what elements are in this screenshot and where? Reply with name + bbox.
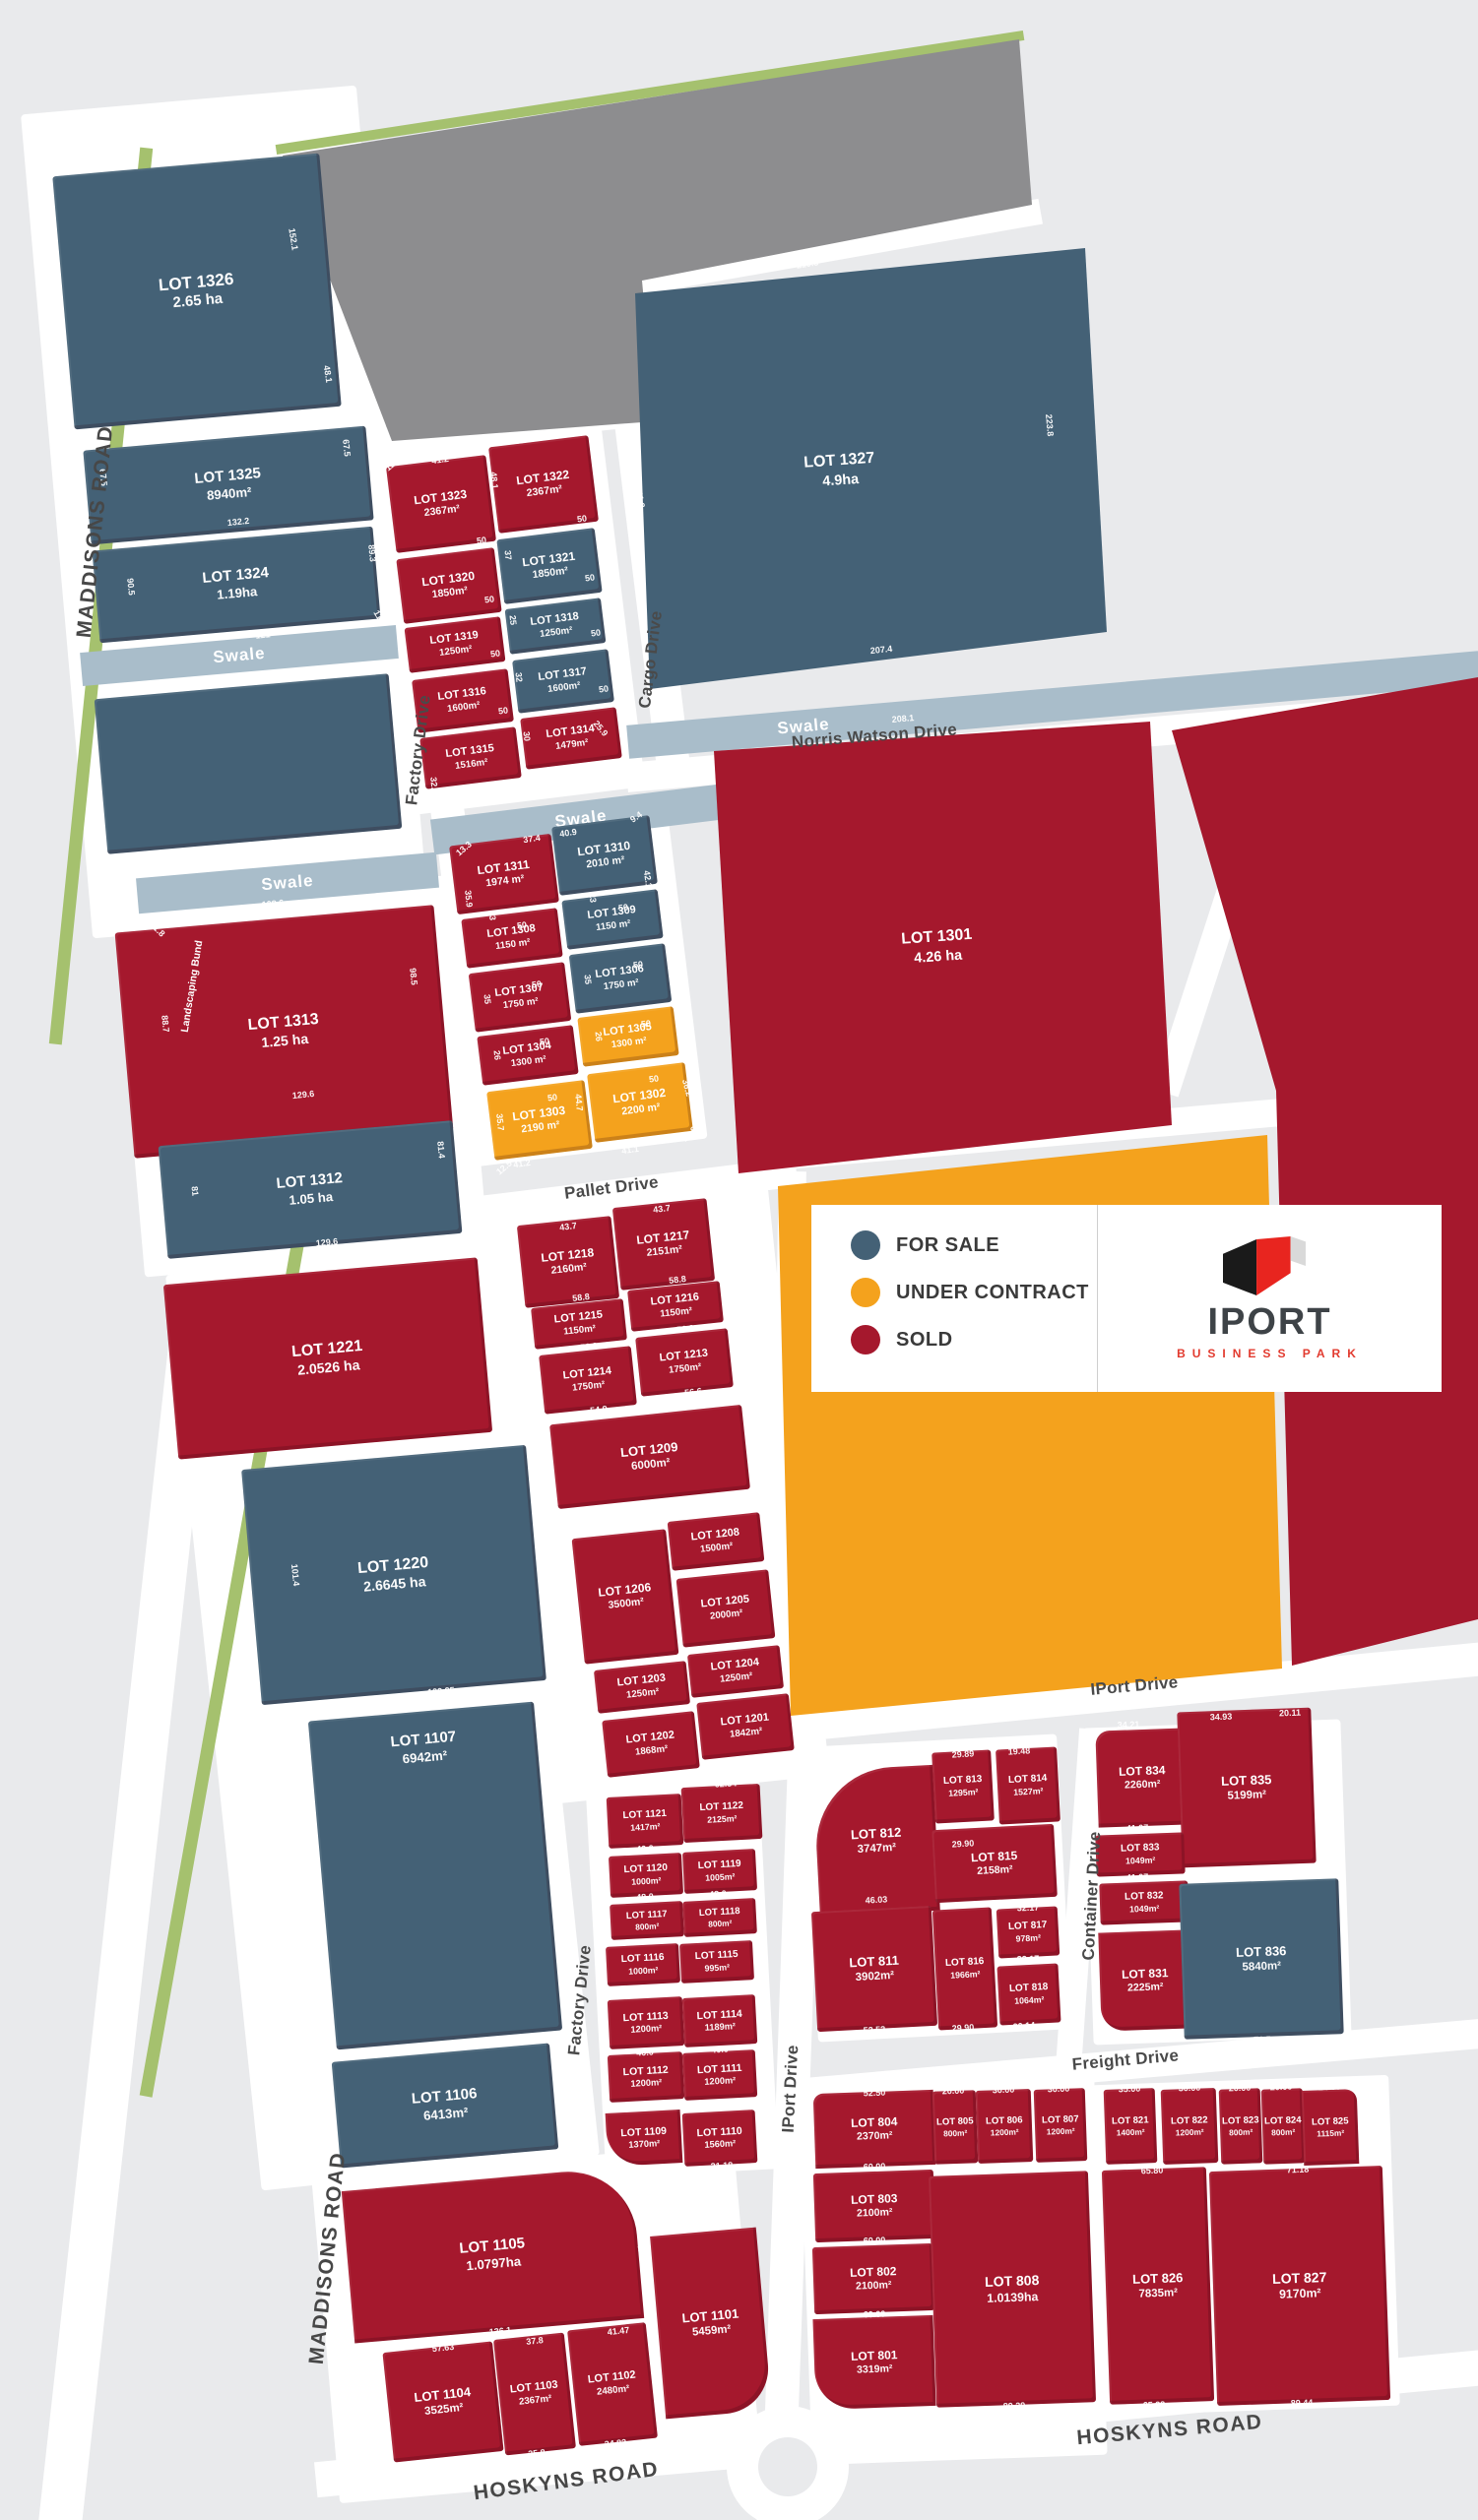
roundabout-island	[758, 2437, 817, 2496]
lot-label: LOT 8141527m²	[1008, 1773, 1049, 1798]
dimension-label: 23	[487, 910, 498, 920]
lot-1206: LOT 12063500m²	[572, 1529, 679, 1664]
dimension-label: 31.18	[710, 2160, 733, 2171]
lot-1116: LOT 11161000m²	[606, 1943, 680, 1986]
lot-816: LOT 8161966m²	[932, 1908, 997, 2031]
dimension-label: 50	[483, 594, 494, 604]
lot-1301-label: LOT 13014.26 ha	[901, 925, 975, 969]
lot-label: LOT 8312225m²	[1122, 1966, 1169, 1995]
lot-1201: LOT 12011842m²	[696, 1693, 795, 1760]
dimension-label: 40.0	[711, 2045, 729, 2055]
lot-835: LOT 8355199m²	[1177, 1708, 1316, 1868]
legend-items: FOR SALE UNDER CONTRACT SOLD	[811, 1205, 1097, 1392]
lot-label: LOT 13258940m²	[194, 465, 263, 505]
parcel-unlabeled	[95, 673, 403, 854]
lot-1110: LOT 11101560m²	[682, 2110, 758, 2167]
dimension-label: 50	[539, 1036, 549, 1046]
dimension-label: 54.9	[590, 1404, 609, 1416]
lot-1103: LOT 11032367m²	[493, 2333, 576, 2456]
dimension-label: 40.0	[636, 2047, 654, 2058]
dimension-label: 56.9	[676, 1323, 695, 1335]
lot-1221: LOT 12212.0526 ha	[163, 1257, 492, 1459]
lot-1326: LOT 13262.65 ha	[52, 154, 341, 430]
dimension-label: 41.19	[708, 1840, 731, 1851]
lot-813: LOT 8131295m²	[932, 1749, 995, 1823]
legend-label: UNDER CONTRACT	[896, 1282, 1089, 1304]
dimension-label: 219.3	[796, 257, 819, 270]
lot-label: LOT 12182160m²	[541, 1245, 597, 1279]
dimension-label: 50	[632, 959, 643, 970]
lot-1119: LOT 11191005m²	[682, 1849, 757, 1894]
iport-site-plan-map: SwaleSwaleSwaleSwaleLOT 13274.9haLOT 130…	[0, 0, 1478, 2520]
lot-label: LOT 8113902m²	[849, 1952, 900, 1984]
dimension-label: 29.90	[951, 2022, 974, 2033]
lot-label: LOT 12063500m²	[598, 1580, 654, 1613]
lot-826: LOT 8267835m²	[1102, 2167, 1214, 2405]
lot-label: LOT 8342260m²	[1119, 1763, 1166, 1793]
lot-label: LOT 12141750m²	[562, 1365, 613, 1396]
sold-swatch-icon	[851, 1325, 880, 1354]
swale-label: Swale	[213, 644, 267, 668]
lot-805: LOT 805800m²	[932, 2090, 979, 2164]
lot-label: LOT 11043525m²	[414, 2384, 474, 2420]
lot-label: LOT 8013319m²	[851, 2348, 898, 2377]
dimension-label: 35.00	[1119, 2084, 1141, 2095]
logo-brand-text: IPORT	[1207, 1303, 1331, 1341]
lot-label: LOT 8042370m²	[851, 2114, 898, 2144]
dimension-label: 32	[614, 650, 625, 661]
dimension-label: 34.21	[1118, 1720, 1140, 1731]
lot-label: LOT 13151516m²	[445, 742, 496, 774]
dimension-label: 50	[476, 535, 486, 545]
lot-label: LOT 8321049m²	[1125, 1891, 1164, 1916]
dimension-label: 25	[508, 614, 519, 625]
dimension-label: 32.8	[428, 777, 440, 794]
lot-label: LOT 13141479m²	[546, 723, 597, 754]
lot-label: LOT 13102010 m²	[576, 839, 632, 873]
dimension-label: 43.7	[653, 1203, 672, 1215]
dimension-label: 50	[497, 705, 508, 716]
lot-label: LOT 11131200m²	[622, 2009, 669, 2036]
lot-label: LOT 13262.65 ha	[158, 269, 236, 314]
dimension-label: 65.80	[1141, 2166, 1164, 2176]
lot-1220: LOT 12202.6645 ha	[241, 1445, 546, 1705]
dimension-label: 30	[522, 730, 533, 741]
dimension-label: 41.1	[621, 1144, 640, 1156]
dimension-label: 50	[546, 1092, 557, 1102]
lot-label: LOT 12096000m²	[619, 1439, 679, 1475]
lot-1320: LOT 13201850m²	[396, 547, 501, 624]
dimension-label: 65.23	[1143, 2400, 1166, 2411]
lot-label: LOT 12172151m²	[636, 1228, 692, 1261]
dimension-label: 50	[489, 648, 500, 659]
dimension-label: 48.1	[488, 472, 500, 489]
dimension-label: 67.5	[341, 439, 353, 457]
lot-823: LOT 823800m²	[1219, 2088, 1263, 2164]
lot-label: LOT 8365840m²	[1236, 1943, 1287, 1975]
lot-label: LOT 1117800m²	[626, 1909, 669, 1932]
lot-label: LOT 13161600m²	[437, 685, 488, 717]
dimension-label: 35	[482, 993, 493, 1004]
lot-label: LOT 11015459m²	[681, 2305, 740, 2340]
lot-label: LOT 805800m²	[936, 2115, 974, 2139]
lot-label: LOT 8131295m²	[943, 1774, 984, 1799]
dimension-label: 44.7	[573, 1094, 585, 1111]
lot-1105: LOT 11051.0797ha	[341, 2166, 643, 2343]
dimension-label: 26	[594, 1031, 605, 1041]
lot-label: LOT 13121.05 ha	[276, 1168, 345, 1209]
dimension-label: 56.6	[684, 1386, 703, 1398]
lot-814: LOT 8141527m²	[996, 1746, 1060, 1824]
lot-1114: LOT 11141189m²	[682, 1994, 758, 2047]
dimension-label: 34.93	[1210, 1712, 1233, 1723]
lot-label: LOT 11022480m²	[587, 2369, 637, 2400]
lot-label: LOT 13131.25 ha	[246, 1010, 320, 1053]
lot-822: LOT 8221200m²	[1161, 2088, 1219, 2165]
lot-label: LOT 13091150 m²	[587, 904, 638, 935]
lot-label: LOT 11032367m²	[509, 2379, 559, 2410]
dimension-label: 40.0	[636, 2102, 654, 2112]
lot-label: LOT 11191005m²	[697, 1858, 741, 1884]
lot-label: LOT 8331049m²	[1121, 1843, 1160, 1867]
lot-825: LOT 8251115m²	[1302, 2089, 1360, 2166]
dimension-label: 48.0	[636, 1892, 654, 1903]
dimension-label: 60.00	[864, 2236, 886, 2246]
legend-row-sold: SOLD	[851, 1325, 1097, 1354]
lot-label: LOT 13081150 m²	[486, 922, 538, 954]
lot-label: LOT 13191250m²	[429, 629, 481, 661]
iport-logo-icon	[1223, 1236, 1317, 1295]
lot-label: LOT 12081500m²	[690, 1527, 741, 1557]
under-contract-swatch-icon	[851, 1278, 880, 1307]
lot-1327-label: LOT 13274.9ha	[803, 449, 877, 492]
dimension-label: 56.9	[580, 1341, 599, 1353]
legend-row-for-sale: FOR SALE	[851, 1230, 1097, 1260]
lot-label: LOT 1118800m²	[699, 1906, 741, 1929]
lot-label: LOT 12202.6645 ha	[356, 1553, 430, 1597]
lot-label: LOT 8032100m²	[851, 2191, 898, 2221]
lot-label: LOT 8251115m²	[1312, 2115, 1349, 2139]
dimension-label: 50	[584, 572, 595, 583]
dimension-label: 89.44	[1291, 2398, 1314, 2409]
dimension-label: 50	[590, 627, 601, 638]
lot-1106: LOT 11066413m²	[332, 2044, 559, 2169]
lot-1115: LOT 1115995m²	[679, 1940, 754, 1984]
lot-1121: LOT 11211417m²	[607, 1794, 684, 1849]
lot-1104: LOT 11043525m²	[382, 2341, 503, 2462]
lot-1101: LOT 11015459m²	[650, 2228, 772, 2420]
lot-label: LOT 8211400m²	[1112, 2114, 1149, 2138]
dimension-label: 50	[531, 978, 542, 989]
dimension-label: 60.00	[864, 2309, 886, 2320]
dimension-label: 223.8	[1044, 413, 1056, 436]
lot-label: LOT 8081.0139ha	[985, 2272, 1040, 2306]
legend-panel: FOR SALE UNDER CONTRACT SOLD IPORT BUSIN…	[811, 1205, 1442, 1392]
lot-label: LOT 12011842m²	[720, 1712, 771, 1742]
legend-label: FOR SALE	[896, 1234, 999, 1257]
lot-803: LOT 8032100m²	[813, 2170, 935, 2242]
lot-1302: LOT 13022200 m²	[587, 1062, 693, 1143]
lot-1214: LOT 12141750m²	[539, 1346, 637, 1414]
dimension-label: 52.50	[864, 2088, 886, 2099]
lot-1112: LOT 11121200m²	[608, 2051, 684, 2103]
lot-1113: LOT 11131200m²	[608, 1996, 685, 2049]
dimension-label: 32.17	[1017, 1954, 1040, 1965]
lot-label: LOT 8152158m²	[971, 1849, 1019, 1879]
dimension-label: 35.9	[463, 890, 475, 908]
dimension-label: 50	[576, 513, 587, 524]
dimension-label: 20.00	[1270, 2082, 1293, 2093]
lot-label: LOT 8161966m²	[945, 1956, 986, 1982]
lot-1118: LOT 1118800m²	[682, 1898, 757, 1937]
dimension-label: 20.00	[1229, 2083, 1252, 2094]
dimension-label: 80.00	[1001, 2165, 1024, 2175]
dimension-label: 35	[583, 974, 594, 984]
dimension-label: 29.89	[951, 1748, 974, 1759]
dimension-label: 30.00	[1048, 2084, 1070, 2095]
lot-label: LOT 13111974 m²	[477, 857, 532, 891]
lot-label: LOT 8267835m²	[1132, 2270, 1184, 2301]
dimension-label: 50	[617, 902, 628, 913]
lot-1111: LOT 11111200m²	[682, 2049, 757, 2101]
lot-label: LOT 13201850m²	[420, 569, 477, 603]
lot-label: LOT 13232367m²	[413, 487, 469, 522]
dimension-label: 43.7	[559, 1221, 578, 1232]
dimension-label: 98.5	[408, 968, 419, 985]
lot-824: LOT 824800m²	[1261, 2088, 1306, 2164]
logo-tagline-text: BUSINESS PARK	[1177, 1347, 1363, 1360]
dimension-label: 20.11	[1279, 1708, 1301, 1719]
dimension-label: 37	[603, 528, 613, 538]
lot-836: LOT 8365840m²	[1179, 1878, 1343, 2040]
iport-logo: IPORT BUSINESS PARK	[1098, 1205, 1442, 1392]
dimension-label: 40.0	[634, 1984, 652, 1994]
dimension-label: 20.00	[942, 2086, 965, 2097]
lot-label: LOT 13181250m²	[530, 610, 581, 642]
lot-label: LOT 11222125m²	[699, 1800, 744, 1826]
lot-1321: LOT 13211850m²	[496, 528, 602, 604]
lot-label: LOT 11201000m²	[623, 1862, 669, 1888]
dimension-label: 89.29	[1003, 2401, 1026, 2412]
lot-label: LOT 12021868m²	[625, 1730, 676, 1760]
lot-label: LOT 11091370m²	[620, 2124, 668, 2151]
lot-label: LOT 13241.19ha	[202, 564, 271, 604]
lot-833: LOT 8331049m²	[1095, 1832, 1185, 1876]
dimension-label: 46.03	[865, 1894, 887, 1905]
dimension-label: 50	[648, 1073, 659, 1084]
lot-label: LOT 12151150m²	[553, 1309, 605, 1340]
lot-804: LOT 8042370m²	[813, 2090, 936, 2169]
lot-label: LOT 13222367m²	[515, 468, 571, 502]
lot-831: LOT 8312225m²	[1098, 1929, 1191, 2031]
dimension-label: 30.00	[993, 2085, 1015, 2096]
lot-807: LOT 8071200m²	[1034, 2088, 1088, 2163]
dimension-label: 81	[190, 1185, 201, 1196]
dimension-label: 40.0	[636, 1844, 654, 1855]
lot-label: LOT 8061200m²	[986, 2114, 1023, 2138]
lot-label: LOT 12052000m²	[700, 1594, 751, 1624]
lot-821: LOT 8211400m²	[1104, 2088, 1158, 2165]
dimension-label: 50	[640, 1018, 651, 1029]
dimension-label: 88.7	[160, 1015, 171, 1033]
dimension-label: 37	[503, 549, 514, 560]
lot-label: LOT 1115995m²	[694, 1949, 739, 1975]
lot-label: LOT 11076942m²	[390, 1728, 459, 1768]
lot-label: LOT 13171600m²	[538, 665, 589, 697]
lot-label: LOT 8022100m²	[850, 2264, 897, 2294]
dimension-label: 29.90	[951, 1838, 974, 1849]
lot-1117: LOT 1117800m²	[610, 1901, 684, 1940]
lot-label: LOT 13032190 m²	[511, 1103, 567, 1138]
lot-1102: LOT 11022480m²	[567, 2322, 658, 2446]
lot-1202: LOT 12021868m²	[602, 1711, 700, 1778]
lot-label: LOT 13211850m²	[521, 549, 577, 584]
dimension-label: 26	[492, 1049, 503, 1060]
dimension-label: 23	[588, 892, 599, 903]
lot-label: LOT 11161000m²	[620, 1952, 665, 1978]
lot-label: LOT 13022200 m²	[611, 1086, 668, 1120]
dimension-label: 20.14	[1012, 2020, 1035, 2032]
for-sale-swatch-icon	[851, 1230, 880, 1260]
lot-806: LOT 8061200m²	[976, 2089, 1034, 2164]
lot-1205: LOT 12052000m²	[676, 1569, 776, 1647]
lot-label: LOT 824800m²	[1264, 2114, 1302, 2138]
lot-834: LOT 8342260m²	[1095, 1728, 1189, 1827]
dimension-label: 60.00	[864, 2162, 886, 2173]
lot-815: LOT 8152158m²	[932, 1824, 1058, 1903]
lot-801: LOT 8013319m²	[812, 2315, 935, 2410]
lot-811: LOT 8113902m²	[811, 1906, 937, 2032]
legend-row-under-contract: UNDER CONTRACT	[851, 1278, 1097, 1307]
dimension-label: 35.8	[528, 2447, 546, 2459]
dimension-label: 81.4	[435, 1141, 447, 1159]
dimension-label: 32.17	[1017, 1903, 1040, 1914]
dimension-label: 24.66	[1318, 2082, 1341, 2093]
dimension-label: 40.0	[711, 2099, 729, 2110]
dimension-label: 90.5	[125, 578, 137, 596]
dimension-label: 41.2	[513, 1158, 532, 1169]
lot-827: LOT 8279170m²	[1209, 2166, 1390, 2406]
dimension-label: 37.8	[526, 2335, 544, 2347]
lot-label: LOT 12031250m²	[616, 1672, 668, 1703]
dimension-label: 32	[514, 671, 525, 682]
dimension-label: 41.97	[1126, 1823, 1149, 1834]
lot-1208: LOT 12081500m²	[668, 1512, 765, 1571]
dimension-label: 41.97	[1126, 1872, 1149, 1883]
dimension-label: 58.8	[572, 1291, 591, 1303]
dimension-label: 52.53	[863, 2024, 885, 2035]
lot-label: LOT 8071200m²	[1042, 2113, 1079, 2137]
lot-label: LOT 12212.0526 ha	[290, 1337, 364, 1380]
lot-818: LOT 8181064m²	[996, 1963, 1060, 2025]
lot-label: LOT 11051.0797ha	[458, 2235, 527, 2275]
lot-label: LOT 11101560m²	[696, 2124, 742, 2151]
lot-label: LOT 12041250m²	[710, 1657, 761, 1687]
dimension-label: 58.8	[669, 1274, 687, 1286]
lot-label: LOT 817978m²	[1008, 1920, 1049, 1945]
legend-label: SOLD	[896, 1329, 953, 1352]
dimension-label: 35.7	[494, 1113, 506, 1131]
dimension-label: 41.97	[1126, 1922, 1149, 1933]
lot-1213: LOT 12131750m²	[635, 1328, 734, 1396]
dimension-label: 50	[516, 919, 527, 930]
lot-label: LOT 11141189m²	[696, 2007, 742, 2034]
lot-832: LOT 8321049m²	[1099, 1880, 1189, 1924]
lot-label: LOT 11121200m²	[622, 2063, 669, 2090]
lot-label: LOT 11111200m²	[697, 2061, 743, 2088]
lot-label: LOT 11211417m²	[622, 1808, 668, 1834]
dimension-label: 67.01	[1236, 1867, 1258, 1878]
lot-label: LOT 11066413m²	[411, 2086, 480, 2126]
lot-1107: LOT 11076942m²	[308, 1701, 562, 2049]
lot-802: LOT 8022100m²	[812, 2243, 934, 2314]
dimension-label: 89.3	[366, 544, 378, 562]
lot-label: LOT 8181064m²	[1009, 1982, 1050, 2007]
lot-label: LOT 12131750m²	[659, 1348, 710, 1378]
lot-label: LOT 8221200m²	[1171, 2114, 1208, 2138]
dimension-label: 30.38	[1131, 2029, 1154, 2040]
lot-label: LOT 12161150m²	[650, 1291, 701, 1322]
dimension-label: 121	[255, 629, 271, 641]
lot-label: LOT 823800m²	[1222, 2114, 1259, 2138]
dimension-label: 50	[598, 683, 609, 694]
swale-label: Swale	[261, 871, 315, 896]
dimension-label: 39.3	[597, 456, 609, 473]
lot-817: LOT 817978m²	[996, 1906, 1060, 1958]
dimension-label: 30.00	[1179, 2083, 1201, 2094]
dimension-label: 48.0	[709, 1889, 727, 1900]
lot-1122: LOT 11222125m²	[681, 1784, 763, 1843]
dimension-label: 25	[609, 593, 619, 603]
dimension-label: 19.48	[1007, 1745, 1030, 1756]
lot-label: LOT 8123747m²	[851, 1824, 903, 1857]
lot-label: LOT 8279170m²	[1272, 2269, 1327, 2303]
lot-label: LOT 8355199m²	[1221, 1772, 1272, 1803]
dimension-label: 62.34	[714, 1778, 737, 1789]
lot-808: LOT 8081.0139ha	[929, 2171, 1096, 2408]
dimension-label: 76.5	[1253, 2035, 1271, 2046]
dimension-label: 71.18	[1287, 2165, 1310, 2175]
